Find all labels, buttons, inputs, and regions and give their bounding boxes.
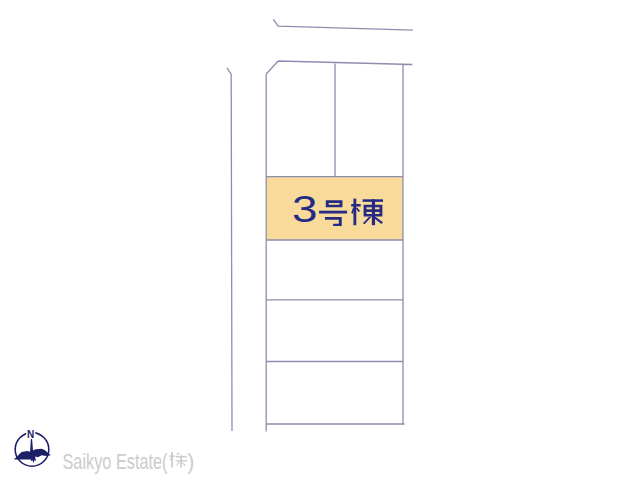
svg-text:Saikyo Estate(: Saikyo Estate(	[63, 450, 168, 474]
svg-text:3: 3	[292, 189, 318, 230]
svg-text:): )	[187, 450, 194, 474]
svg-text:N: N	[27, 429, 34, 440]
